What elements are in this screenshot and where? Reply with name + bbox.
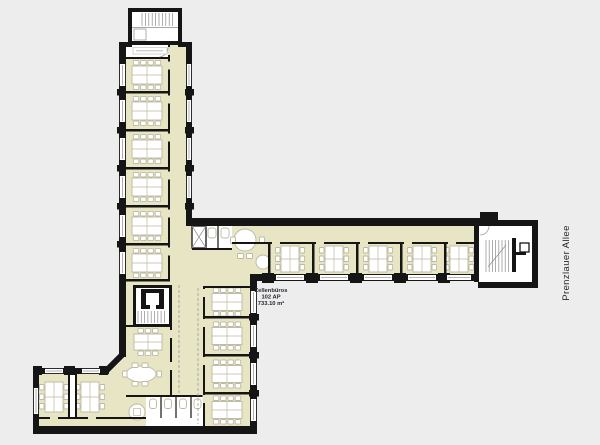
toilet <box>194 399 201 409</box>
office-table <box>319 246 348 272</box>
chair <box>235 346 241 351</box>
chair <box>432 248 437 254</box>
chair <box>235 396 241 401</box>
chair <box>123 371 128 377</box>
chair <box>388 248 393 254</box>
chair <box>141 134 147 139</box>
building-bottom-wall <box>33 426 257 434</box>
corridor-wall <box>168 45 170 281</box>
stairwell-wall <box>478 282 538 288</box>
door-opening <box>88 417 96 420</box>
chair <box>133 159 139 164</box>
chair <box>363 256 368 262</box>
chair <box>155 273 161 278</box>
north-stairwell-wall <box>128 41 182 45</box>
north-stairwell-wall <box>178 8 182 45</box>
chair <box>141 172 147 177</box>
chair <box>153 328 159 333</box>
chair <box>407 256 412 262</box>
chair <box>142 382 148 387</box>
street-label: Prenzlauer Allee <box>561 225 572 301</box>
chair <box>133 211 139 216</box>
door-opening <box>203 319 206 327</box>
chair <box>300 256 305 262</box>
chair <box>344 256 349 262</box>
chair <box>141 60 147 65</box>
office-table <box>444 246 473 272</box>
pillar <box>249 314 259 321</box>
chair <box>155 197 161 202</box>
chair <box>133 96 139 101</box>
chair <box>275 265 280 271</box>
chair <box>213 322 219 327</box>
elevator-cab <box>520 243 529 252</box>
chair <box>100 385 105 391</box>
chair <box>221 384 227 389</box>
chair <box>213 360 219 365</box>
chair <box>228 322 234 327</box>
office-table <box>39 382 68 412</box>
chair <box>148 211 154 216</box>
pillar <box>117 165 126 172</box>
utility-room-wall <box>126 57 170 59</box>
door-opening <box>404 242 412 245</box>
chair <box>432 256 437 262</box>
pillar <box>185 127 194 134</box>
elevator-core-wall <box>133 324 172 327</box>
chair <box>213 346 219 351</box>
chair <box>275 248 280 254</box>
wall-gap <box>70 374 75 417</box>
round-table <box>234 229 256 251</box>
east-corridor-wall <box>232 242 474 244</box>
chair <box>213 384 219 389</box>
chair <box>133 172 139 177</box>
chair <box>100 404 105 410</box>
chair <box>141 121 147 126</box>
pillar <box>117 241 126 248</box>
chair <box>228 360 234 365</box>
room-divider <box>356 244 359 274</box>
north-stairwell-wall <box>128 8 132 45</box>
chair <box>141 236 147 241</box>
pillar <box>117 203 126 210</box>
chair <box>388 265 393 271</box>
chair <box>39 385 44 391</box>
foot-divider-wall <box>75 374 77 418</box>
chair <box>141 273 147 278</box>
pillar <box>33 366 42 375</box>
chair <box>221 360 227 365</box>
chair <box>132 363 138 368</box>
chair <box>133 60 139 65</box>
floor-plan: Zellenbüros 102 AP 733.10 m² Prenzlauer … <box>0 0 600 445</box>
chair <box>138 328 144 333</box>
pillar <box>394 273 406 283</box>
room-wall <box>203 286 250 288</box>
chair <box>155 134 161 139</box>
chair <box>319 248 324 254</box>
chair <box>155 236 161 241</box>
chair <box>275 256 280 262</box>
chair <box>407 248 412 254</box>
stairwell-stub <box>480 212 498 222</box>
chair <box>235 360 241 365</box>
wc-wall <box>126 395 205 397</box>
chair <box>148 134 154 139</box>
chair <box>148 197 154 202</box>
chair <box>155 85 161 90</box>
chair <box>133 273 139 278</box>
chair <box>138 351 144 356</box>
room-divider <box>119 243 170 246</box>
door-opening <box>170 330 173 338</box>
room-divider <box>119 167 170 170</box>
door-opening <box>316 242 324 245</box>
room-divider <box>312 244 315 274</box>
office-table <box>134 328 162 355</box>
pillar <box>185 203 194 210</box>
chair <box>148 121 154 126</box>
chair <box>133 85 139 90</box>
chair <box>148 172 154 177</box>
door-opening <box>448 242 456 245</box>
elevator-core-wall <box>133 285 136 327</box>
chair <box>133 248 139 253</box>
door-opening <box>168 210 171 218</box>
chair <box>145 328 151 333</box>
chair <box>155 159 161 164</box>
door-opening <box>203 395 206 403</box>
chair <box>155 248 161 253</box>
office-table <box>407 246 436 272</box>
chair <box>213 396 219 401</box>
chair <box>155 96 161 101</box>
chair <box>221 288 227 293</box>
room-divider <box>119 129 170 132</box>
pillar <box>99 366 108 375</box>
chair <box>64 404 69 410</box>
chair <box>235 420 241 425</box>
chair <box>469 265 474 271</box>
chair <box>133 121 139 126</box>
chair <box>235 384 241 389</box>
office-table <box>363 246 392 272</box>
chair <box>148 273 154 278</box>
chair <box>148 248 154 253</box>
chair <box>228 346 234 351</box>
chair <box>148 159 154 164</box>
chair <box>155 121 161 126</box>
door-opening <box>168 248 171 256</box>
pillar <box>350 273 362 283</box>
pillar <box>185 89 194 96</box>
room-divider <box>203 316 250 319</box>
area-label-area: 733.10 m² <box>258 300 284 307</box>
lounge-chair <box>256 255 270 269</box>
room-divider <box>268 244 271 274</box>
chair <box>363 265 368 271</box>
chair <box>235 288 241 293</box>
pillar <box>64 366 75 375</box>
chair <box>469 248 474 254</box>
chair <box>148 85 154 90</box>
elevator-door-gap <box>150 305 156 309</box>
chair <box>141 159 147 164</box>
room-divider <box>119 279 170 282</box>
chair <box>221 312 227 317</box>
chair <box>155 172 161 177</box>
door-opening <box>168 134 171 142</box>
toilet <box>180 399 187 409</box>
chair <box>388 256 393 262</box>
pillar <box>117 127 126 134</box>
chair <box>228 420 234 425</box>
pillar <box>249 390 259 397</box>
toilet <box>221 228 229 238</box>
chair <box>469 256 474 262</box>
office-table <box>75 382 104 412</box>
room-divider <box>119 91 170 94</box>
chair <box>228 288 234 293</box>
north-stairwell-wall <box>128 8 182 12</box>
chair <box>228 312 234 317</box>
pillar <box>306 273 318 283</box>
chair <box>247 254 253 259</box>
chair <box>344 265 349 271</box>
chair <box>141 85 147 90</box>
chair <box>300 265 305 271</box>
pillar <box>262 273 274 283</box>
pillar <box>185 165 194 172</box>
chair <box>363 248 368 254</box>
chair <box>213 312 219 317</box>
area-label-title: Zellenbüros <box>255 288 288 294</box>
chair <box>221 346 227 351</box>
door-opening <box>272 242 280 245</box>
room-divider <box>444 244 447 274</box>
elevator-core-wall <box>133 285 172 288</box>
chair <box>221 420 227 425</box>
chair <box>155 60 161 65</box>
chair <box>155 211 161 216</box>
pillar <box>117 89 126 96</box>
chair <box>132 382 138 387</box>
chair <box>133 134 139 139</box>
room-divider <box>400 244 403 274</box>
chair <box>39 394 44 400</box>
chair <box>213 288 219 293</box>
chair <box>432 265 437 271</box>
door-opening <box>203 289 206 297</box>
floor-plan-canvas: Zellenbüros 102 AP 733.10 m² Prenzlauer … <box>0 0 600 445</box>
chair <box>221 396 227 401</box>
chair <box>142 363 148 368</box>
oval-table <box>126 366 156 382</box>
chair <box>64 394 69 400</box>
elevator-core-wall <box>169 285 172 327</box>
chair <box>319 265 324 271</box>
chair <box>141 211 147 216</box>
chair <box>228 396 234 401</box>
stairwell-inner-wall <box>512 238 516 272</box>
door-opening <box>168 96 171 104</box>
toilet <box>208 228 216 238</box>
foot-divider-wall <box>68 374 70 418</box>
chair <box>145 351 151 356</box>
stairwell-wall <box>532 220 538 288</box>
chair <box>235 322 241 327</box>
room-divider <box>203 392 250 395</box>
chair <box>235 312 241 317</box>
door-opening <box>50 417 58 420</box>
area-label-workplaces: 102 AP <box>261 295 280 301</box>
chair <box>148 60 154 65</box>
chair <box>148 96 154 101</box>
north-stairwell-interior <box>132 12 178 41</box>
chair <box>213 420 219 425</box>
chair <box>238 254 244 259</box>
stairwell-wall <box>474 226 479 282</box>
door-opening <box>203 357 206 365</box>
chair <box>300 248 305 254</box>
chair <box>133 236 139 241</box>
chair <box>319 256 324 262</box>
chair <box>141 197 147 202</box>
chair <box>141 96 147 101</box>
toilet <box>165 399 172 409</box>
pillar <box>249 352 259 359</box>
elevator-shaft-inner <box>146 293 159 305</box>
room-divider <box>119 205 170 208</box>
chair <box>141 248 147 253</box>
chair <box>153 351 159 356</box>
office-table <box>275 246 304 272</box>
door-opening <box>168 172 171 180</box>
chair <box>64 385 69 391</box>
door-opening <box>360 242 368 245</box>
chair <box>133 197 139 202</box>
toilet <box>150 399 157 409</box>
chair <box>407 265 412 271</box>
door-opening <box>170 362 173 370</box>
chair <box>39 404 44 410</box>
chair <box>148 236 154 241</box>
door-opening <box>168 62 171 70</box>
chair <box>344 248 349 254</box>
chair <box>228 384 234 389</box>
room-divider <box>203 354 250 357</box>
chair <box>221 322 227 327</box>
chair <box>157 371 162 377</box>
chair <box>100 394 105 400</box>
east-wing-top-wall <box>186 218 482 226</box>
